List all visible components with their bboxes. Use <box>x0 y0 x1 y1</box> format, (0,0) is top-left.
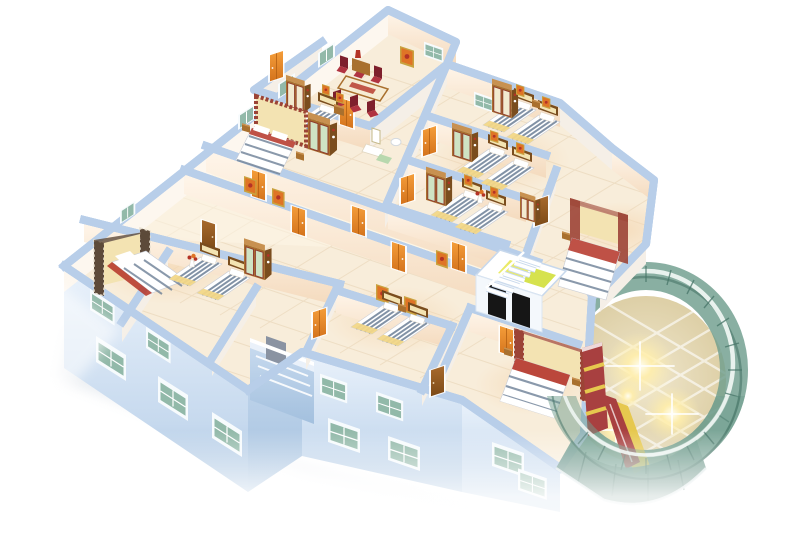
orange-door <box>451 241 468 275</box>
orange-door <box>391 241 408 275</box>
orange-door <box>268 50 285 84</box>
elevator-door <box>512 292 530 328</box>
floorplan-render-canvas: Bird's-eye cutaway 3D rendering of a fur… <box>0 0 800 550</box>
vanity-mirror <box>372 128 380 144</box>
orange-door <box>291 205 308 239</box>
orange-door <box>399 173 416 207</box>
orange-door <box>421 125 438 159</box>
wood-door <box>429 365 446 399</box>
toilet <box>391 138 401 145</box>
isometric-floorplan-svg: Bird's-eye cutaway 3D rendering of a fur… <box>0 0 800 550</box>
canopy-post <box>94 240 104 296</box>
orange-door <box>311 307 328 341</box>
orange-door <box>351 205 368 239</box>
